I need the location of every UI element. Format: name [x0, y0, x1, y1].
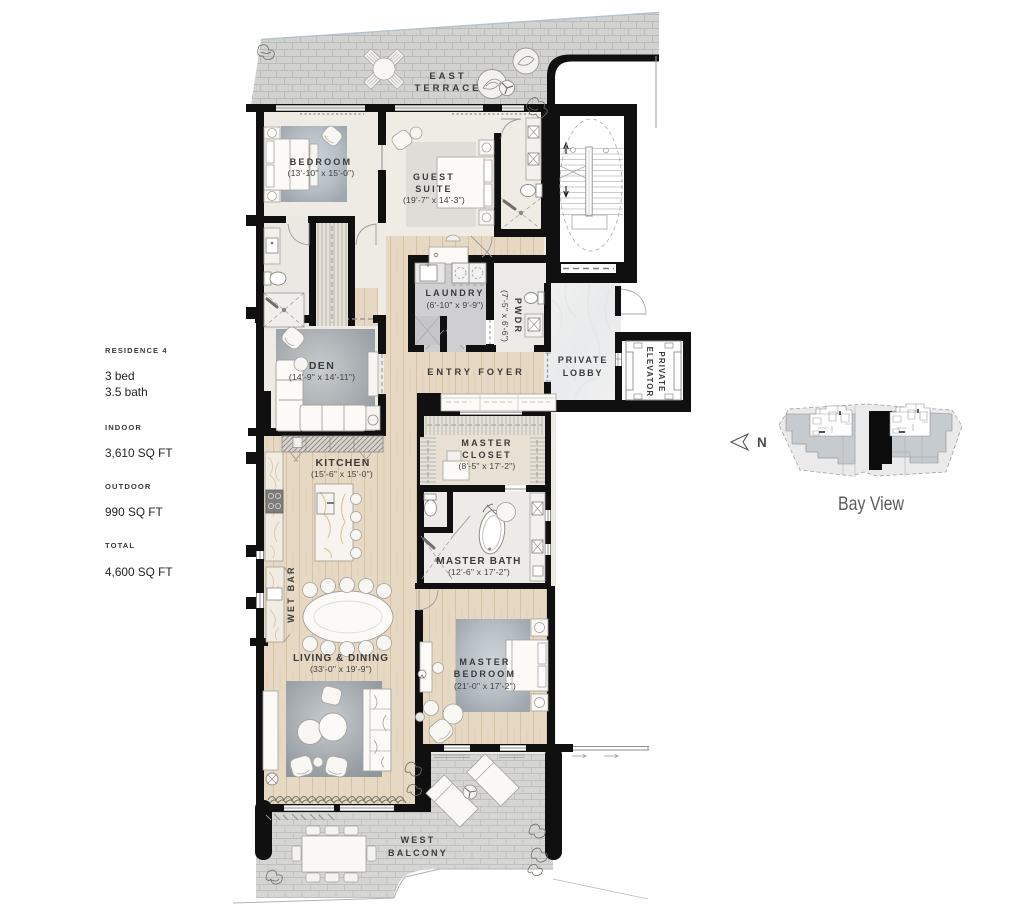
svg-text:WET BAR: WET BAR [286, 565, 296, 622]
svg-text:ELEVATOR: ELEVATOR [645, 347, 654, 398]
svg-text:LOBBY: LOBBY [563, 368, 604, 378]
svg-text:(13'-10" x 15'-0"): (13'-10" x 15'-0") [288, 168, 355, 178]
svg-text:(21'-0" x 17'-2"): (21'-0" x 17'-2") [454, 681, 516, 691]
svg-text:GUEST: GUEST [413, 172, 455, 182]
svg-text:(15'-6" x 15'-0"): (15'-6" x 15'-0") [311, 469, 373, 479]
svg-text:(14'-9" x 14'-11"): (14'-9" x 14'-11") [289, 372, 355, 382]
svg-text:INDOOR: INDOOR [105, 423, 142, 432]
svg-text:MASTER: MASTER [459, 657, 510, 667]
svg-text:990 SQ FT: 990 SQ FT [105, 505, 163, 519]
svg-text:(7'-5" x 6'-6"): (7'-5" x 6'-6") [500, 290, 510, 342]
svg-text:(6'-10" x 9'-9"): (6'-10" x 9'-9") [427, 300, 484, 310]
svg-text:SUITE: SUITE [415, 184, 453, 194]
svg-text:PRIVATE: PRIVATE [558, 355, 608, 365]
svg-text:(12'-6" x 17'-2"): (12'-6" x 17'-2") [448, 567, 510, 577]
svg-text:DEN: DEN [309, 360, 335, 372]
svg-text:MASTER BATH: MASTER BATH [436, 556, 521, 567]
svg-text:MASTER: MASTER [461, 438, 512, 448]
svg-text:LIVING & DINING: LIVING & DINING [293, 653, 389, 664]
svg-text:4,600 SQ FT: 4,600 SQ FT [105, 565, 173, 579]
svg-text:3.5 bath: 3.5 bath [105, 385, 148, 399]
svg-text:CLOSET: CLOSET [462, 450, 512, 460]
svg-text:3 bed: 3 bed [105, 369, 135, 383]
svg-text:WEST: WEST [401, 835, 436, 845]
svg-text:3,610 SQ FT: 3,610 SQ FT [105, 446, 173, 460]
svg-text:EAST: EAST [429, 71, 466, 82]
svg-text:TERRACE: TERRACE [415, 83, 482, 94]
svg-text:BEDROOM: BEDROOM [454, 669, 516, 679]
svg-text:BEDROOM: BEDROOM [290, 157, 352, 167]
svg-text:KITCHEN: KITCHEN [315, 457, 370, 469]
svg-text:(33'-0" x 19'-9"): (33'-0" x 19'-9") [310, 664, 372, 674]
svg-text:BALCONY: BALCONY [388, 848, 448, 858]
svg-text:PWDR: PWDR [513, 298, 523, 334]
svg-text:ENTRY FOYER: ENTRY FOYER [427, 367, 525, 377]
svg-text:RESIDENCE 4: RESIDENCE 4 [105, 346, 168, 355]
svg-text:PRIVATE: PRIVATE [657, 351, 666, 392]
svg-text:N: N [757, 435, 767, 450]
svg-text:TOTAL: TOTAL [105, 541, 135, 550]
svg-text:(8'-5" x 17'-2"): (8'-5" x 17'-2") [459, 461, 516, 471]
svg-text:Bay View: Bay View [838, 493, 905, 515]
svg-text:OUTDOOR: OUTDOOR [105, 482, 152, 491]
svg-text:(19'-7" x 14'-3"): (19'-7" x 14'-3") [403, 195, 465, 205]
svg-text:LAUNDRY: LAUNDRY [425, 288, 484, 298]
